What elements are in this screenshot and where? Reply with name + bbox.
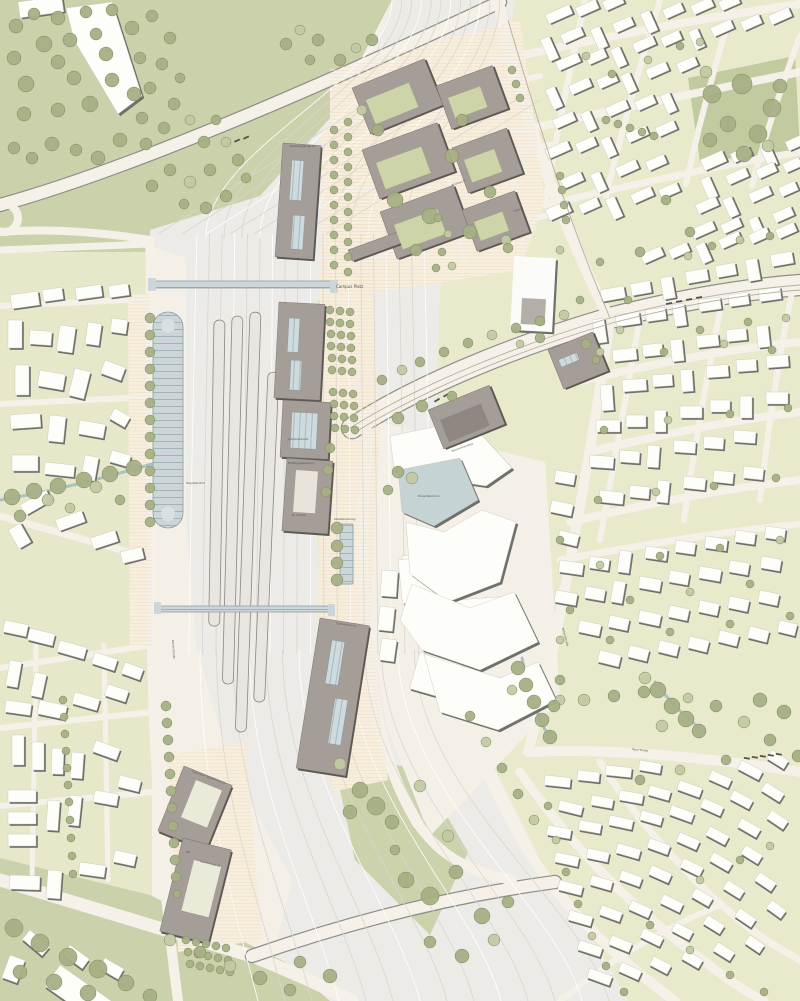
map-label: tbd [186,850,191,854]
map-label: Einkaufszentrum [418,494,440,498]
masterplan-svg: Campus PlatzQuartiersgarage 01Bürohaus 0… [0,0,800,1001]
map-label: Nr. 1 bis 01 [292,514,306,517]
map-label: Hauptbahnhof [186,481,205,485]
map-label: Empfangsgebäude 01 [288,462,315,465]
map-label: Quartiershaus 01 [288,438,309,441]
map-label: Campus Platz [336,284,363,289]
map-label: Quartiersgarage 01 [290,144,316,148]
map-label: Gleisüberquerung [334,518,356,521]
masterplan-map: Campus PlatzQuartiersgarage 01Bürohaus 0… [0,0,800,1001]
